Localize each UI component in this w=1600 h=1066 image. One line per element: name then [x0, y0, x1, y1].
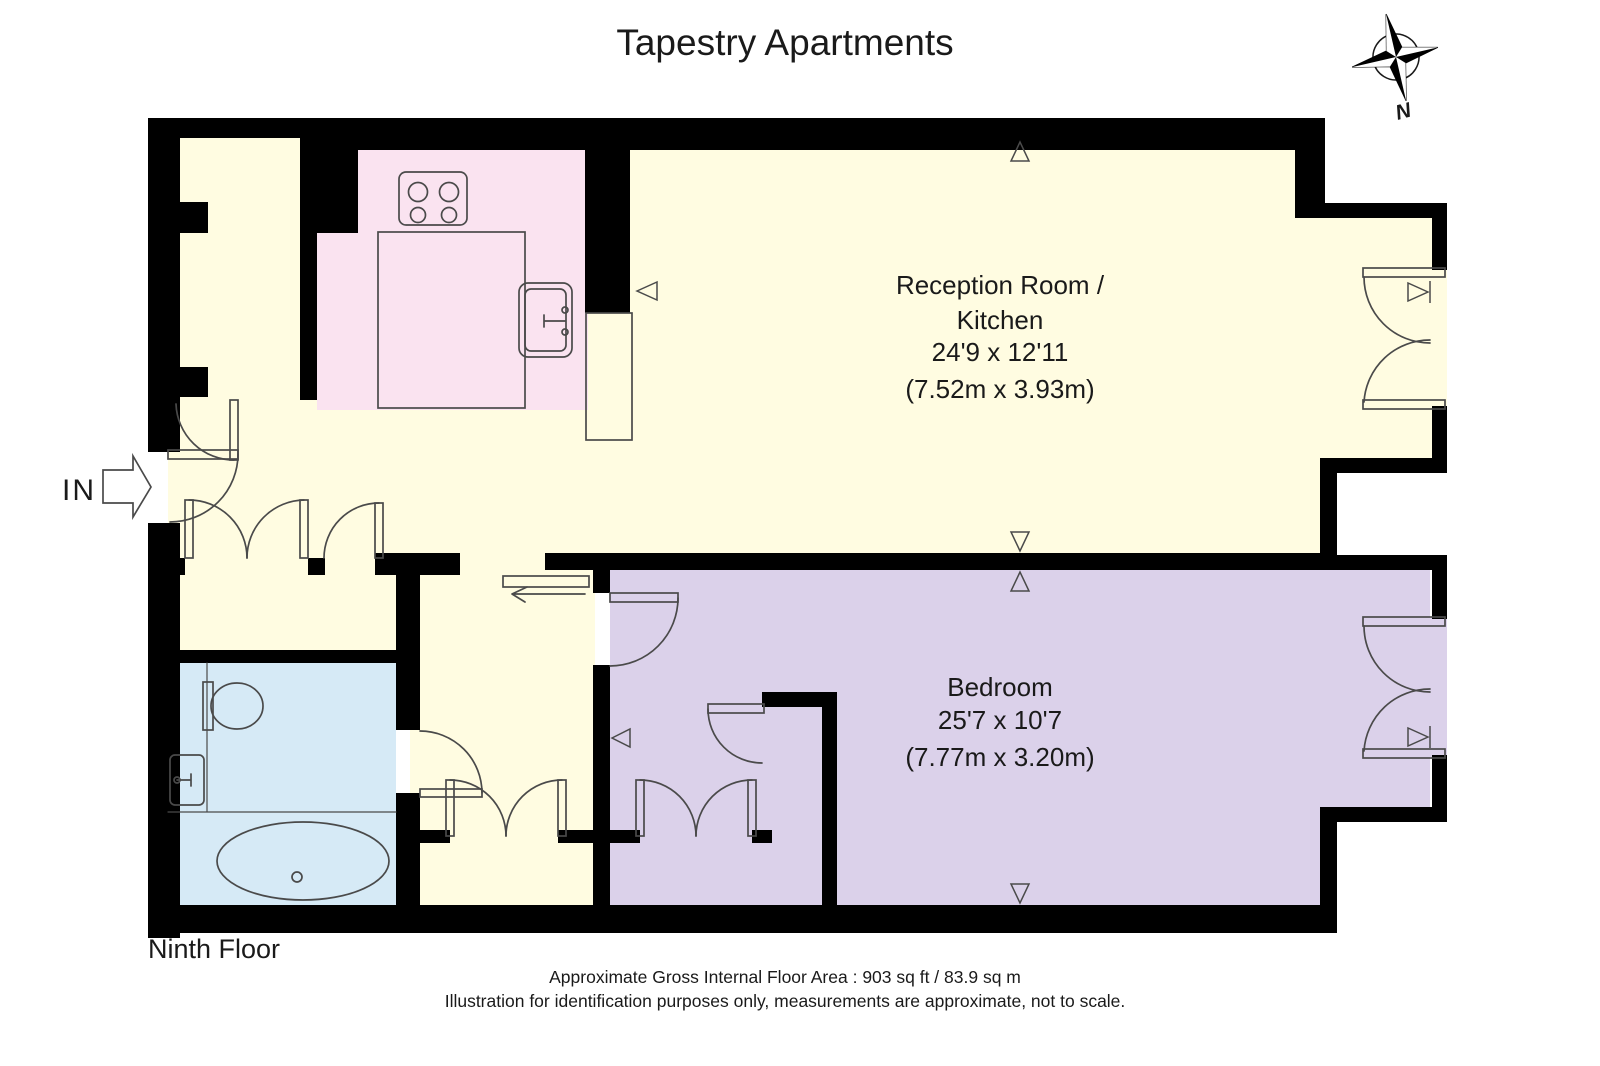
- wall-segment: [308, 558, 325, 575]
- wall-segment: [148, 523, 180, 938]
- wall-segment: [545, 553, 1320, 570]
- bedroom-dimensions-metric: (7.77m x 3.20m): [905, 742, 1094, 772]
- wall-segment: [1432, 406, 1447, 460]
- floorplan-page: IN N Tapestry Apartments Reception Room …: [0, 0, 1600, 1066]
- reception-label-line: Kitchen: [957, 305, 1044, 335]
- wall-segment: [593, 665, 610, 915]
- wall-segment: [410, 830, 450, 843]
- wall-segment: [593, 570, 610, 593]
- compass-north-label: N: [1393, 98, 1414, 124]
- wall-segment: [1295, 203, 1447, 218]
- floor-area-note: Approximate Gross Internal Floor Area : …: [549, 967, 1021, 987]
- reception-dimensions-metric: (7.52m x 3.93m): [905, 374, 1094, 404]
- bedroom-label-line: Bedroom: [947, 672, 1053, 702]
- wall-segment: [317, 133, 358, 233]
- wall-segment: [585, 133, 630, 313]
- reception-label-line: Reception Room /: [896, 270, 1105, 300]
- wall-segment: [1320, 822, 1337, 917]
- compass: N: [1342, 4, 1448, 124]
- floorplan-canvas: IN N Tapestry Apartments Reception Room …: [0, 0, 1600, 1066]
- wall-segment: [396, 793, 420, 905]
- reception-recess-floor: [1325, 218, 1432, 458]
- wall-pillar: [180, 202, 208, 233]
- inner-hallway-floor: [410, 560, 595, 905]
- wall-segment: [148, 118, 180, 452]
- wall-segment: [168, 558, 185, 575]
- bedroom-dimensions-imperial: 25'7 x 10'7: [938, 705, 1062, 735]
- floors: [168, 138, 1447, 905]
- floor-label: Ninth Floor: [148, 934, 280, 964]
- entry-indicator: IN: [62, 456, 151, 517]
- wall-segment: [1320, 555, 1447, 570]
- entry-label: IN: [62, 474, 96, 507]
- wall-segment: [1432, 755, 1447, 809]
- wall-segment: [168, 650, 420, 663]
- disclaimer-note: Illustration for identification purposes…: [445, 991, 1126, 1011]
- wall-segment: [1320, 458, 1447, 473]
- entry-closet-floor: [168, 560, 396, 652]
- wall-segment: [1432, 570, 1447, 619]
- reception-dimensions-imperial: 24'9 x 12'11: [932, 337, 1069, 367]
- wall-segment: [822, 692, 837, 905]
- wall-segment: [300, 138, 317, 400]
- wall-segment: [396, 650, 420, 730]
- page-title: Tapestry Apartments: [616, 22, 953, 63]
- wall-segment: [1432, 218, 1447, 270]
- entry-arrow-icon: [103, 456, 151, 517]
- wall-segment: [300, 118, 1325, 150]
- wall-segment: [148, 905, 1337, 933]
- wall-segment: [1320, 807, 1447, 822]
- reception-recess-lip: [1432, 263, 1447, 413]
- wall-pillar: [180, 367, 208, 397]
